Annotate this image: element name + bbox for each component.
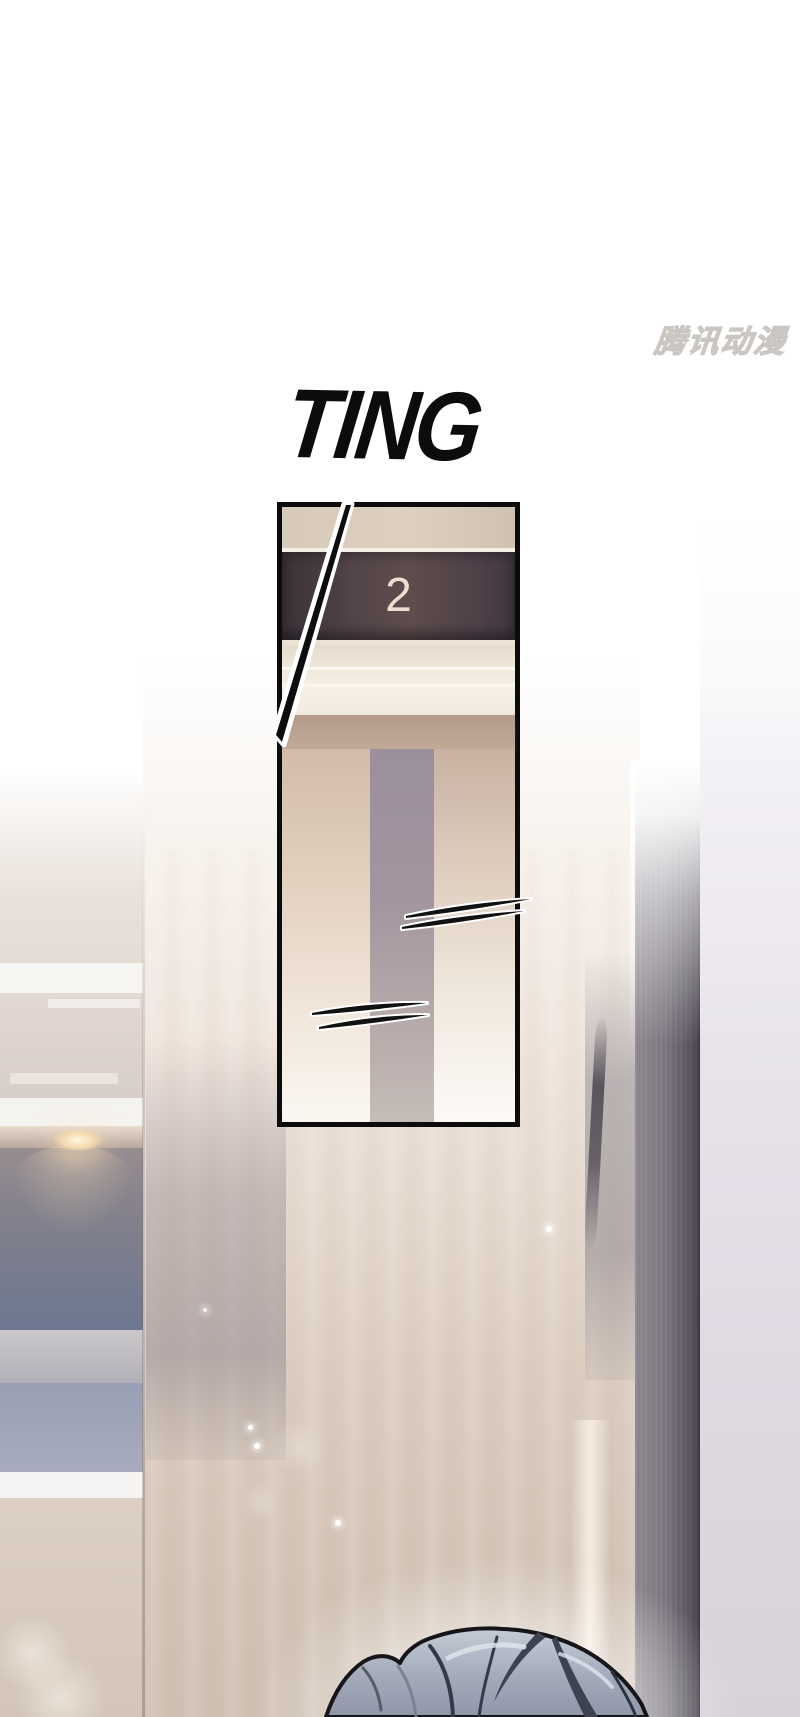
comic-page: 2 bbox=[0, 0, 800, 1717]
sparkle bbox=[203, 1308, 207, 1312]
hallway-upper-wall bbox=[0, 770, 143, 965]
door-column-right bbox=[434, 749, 515, 1122]
blurred-fixture bbox=[10, 1073, 118, 1084]
elevator-doors bbox=[282, 749, 515, 1122]
bokeh-circle bbox=[240, 1482, 280, 1522]
comic-panel-elevator: 2 bbox=[277, 502, 520, 1127]
ceiling-light-line bbox=[282, 667, 515, 670]
white-baseboard bbox=[0, 1472, 143, 1498]
door-column-center bbox=[370, 749, 434, 1122]
sfx-ting-text: TING bbox=[279, 368, 486, 485]
beam-haze-fade bbox=[630, 760, 705, 1220]
hallway-white-trim bbox=[0, 963, 143, 993]
bokeh-circle bbox=[272, 1419, 328, 1475]
hallway-floor-band bbox=[0, 1330, 143, 1383]
elevator-header-trim bbox=[282, 507, 515, 548]
wall-seam bbox=[142, 800, 145, 1717]
sparkle bbox=[248, 1425, 253, 1430]
ceiling-light-line bbox=[282, 683, 515, 687]
door-column-left bbox=[282, 749, 370, 1122]
hair-backlight-glow bbox=[260, 1560, 740, 1717]
ceiling-cove-band bbox=[0, 1098, 143, 1126]
sparkle bbox=[335, 1520, 341, 1526]
hallway-mid-wall bbox=[0, 993, 143, 1098]
downlight-spill bbox=[8, 1145, 138, 1235]
blurred-fixture bbox=[48, 999, 140, 1008]
ceiling-downlight bbox=[52, 1128, 104, 1152]
wall-shadow-pocket bbox=[146, 1040, 286, 1460]
elevator-ceiling bbox=[282, 645, 515, 715]
sparkle bbox=[254, 1443, 260, 1449]
floor-number: 2 bbox=[282, 552, 515, 640]
elevator-floor-display: 2 bbox=[282, 552, 515, 640]
tencent-comics-watermark: 腾讯动漫 bbox=[653, 316, 800, 361]
blue-gray-wall-lower bbox=[0, 1383, 143, 1472]
door-header-band bbox=[282, 715, 515, 749]
sparkle bbox=[546, 1226, 552, 1232]
